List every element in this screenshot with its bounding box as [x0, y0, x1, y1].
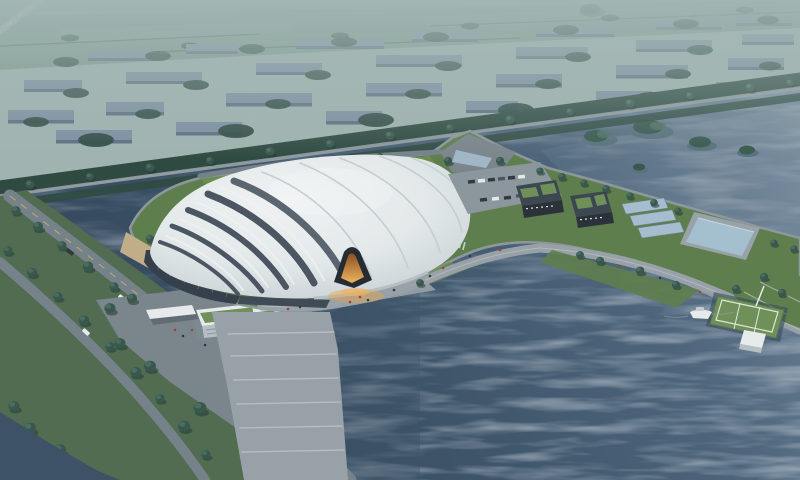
rendering-canvas	[0, 0, 800, 480]
architectural-rendering	[0, 0, 800, 480]
color-cast	[0, 0, 800, 480]
